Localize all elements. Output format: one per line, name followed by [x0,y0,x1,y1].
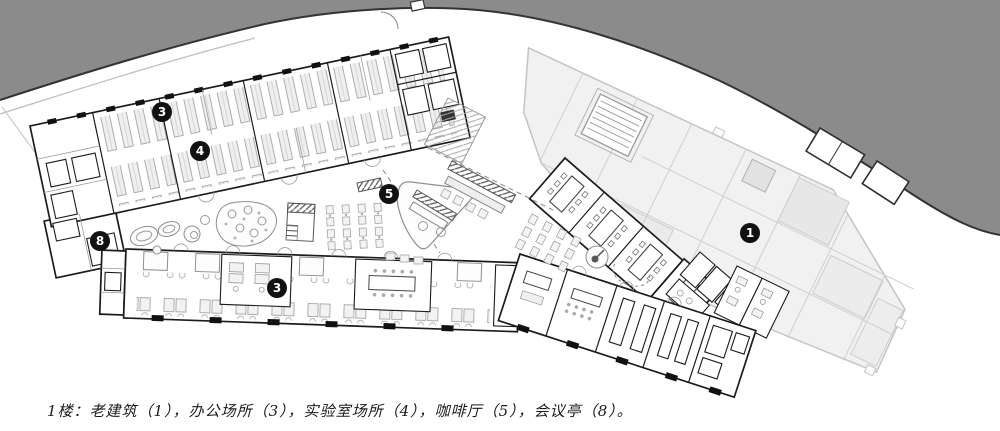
lounge-ellipses [128,216,210,255]
caption: 1楼：老建筑（1），办公场所（3），实验室场所（4），咖啡厅（5），会议亭（8）… [47,400,633,421]
office-wing-a [100,241,520,334]
pebble-seat [216,202,276,246]
compass-feature [586,246,608,268]
floor-plan-page: 345831 1楼：老建筑（1），办公场所（3），实验室场所（4），咖啡厅（5）… [0,0,1000,431]
cafe-tables [326,203,383,250]
floor-plan-drawing [0,0,1000,431]
service-counter [357,178,382,192]
coffee-kiosk [286,203,315,241]
